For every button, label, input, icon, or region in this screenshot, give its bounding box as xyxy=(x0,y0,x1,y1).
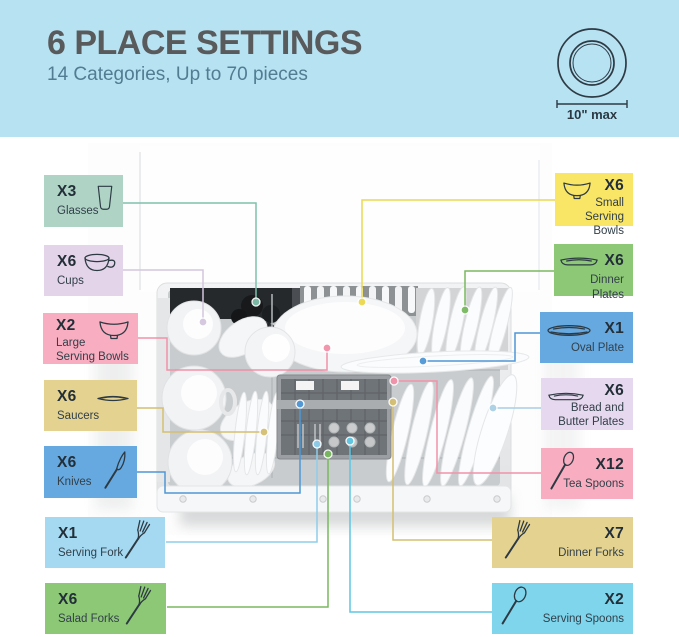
item-count: X6 xyxy=(543,382,624,399)
item-name: Salad Forks xyxy=(58,612,162,627)
label-tea-spoons: X12 Tea Spoons xyxy=(541,448,633,499)
item-name: Cups xyxy=(57,274,119,289)
label-large-serving-bowls: X2 Large Serving Bowls xyxy=(43,313,138,364)
item-name: Small Serving Bowls xyxy=(557,196,624,238)
item-count: X6 xyxy=(57,252,119,271)
item-name: Glasses xyxy=(57,204,119,219)
label-bread-and-butter-plates: X6 Bread and Butter Plates xyxy=(541,378,633,430)
item-count: X7 xyxy=(494,524,624,543)
item-count: X1 xyxy=(542,319,624,338)
item-count: X2 xyxy=(494,590,624,609)
header: 6 PLACE SETTINGS 14 Categories, Up to 70… xyxy=(0,0,679,137)
label-salad-forks: X6 Salad Forks xyxy=(45,583,166,634)
item-count: X6 xyxy=(556,251,624,270)
label-glasses: X3 Glasses xyxy=(44,175,123,227)
item-name: Saucers xyxy=(57,409,133,424)
plate-size-note: 10" max xyxy=(556,107,628,122)
item-name: Dinner Forks xyxy=(494,546,624,561)
label-serving-fork: X1 Serving Fork xyxy=(45,517,165,568)
item-count: X6 xyxy=(57,453,133,472)
label-serving-spoons: X2 Serving Spoons xyxy=(492,583,633,634)
label-cups: X6 Cups xyxy=(44,245,123,296)
item-count: X2 xyxy=(56,317,134,334)
label-saucers: X6 Saucers xyxy=(44,380,137,431)
item-count: X6 xyxy=(57,387,133,406)
item-name: Serving Spoons xyxy=(494,612,624,627)
label-dinner-plates: X6 Dinner Plates xyxy=(554,244,633,296)
bottom-rim xyxy=(157,486,511,512)
item-name: Bread and Butter Plates xyxy=(543,401,624,429)
dishwasher-unit xyxy=(157,283,529,512)
cutlery-basket xyxy=(277,375,391,459)
label-oval-plate: X1 Oval Plate xyxy=(540,312,633,363)
item-name: Knives xyxy=(57,475,133,490)
item-count: X3 xyxy=(57,182,119,201)
item-name: Tea Spoons xyxy=(543,477,624,492)
item-name: Oval Plate xyxy=(542,341,624,356)
item-count: X12 xyxy=(543,455,624,474)
label-knives: X6 Knives xyxy=(44,446,137,498)
item-count: X6 xyxy=(557,177,624,194)
item-name: Serving Fork xyxy=(58,546,161,561)
item-count: X6 xyxy=(58,590,162,609)
item-count: X1 xyxy=(58,524,161,543)
item-name: Dinner Plates xyxy=(556,273,624,303)
label-small-serving-bowls: X6 Small Serving Bowls xyxy=(555,173,633,226)
item-name: Large Serving Bowls xyxy=(56,336,134,364)
label-dinner-forks: X7 Dinner Forks xyxy=(492,517,633,568)
infographic: 6 PLACE SETTINGS 14 Categories, Up to 70… xyxy=(0,0,679,637)
